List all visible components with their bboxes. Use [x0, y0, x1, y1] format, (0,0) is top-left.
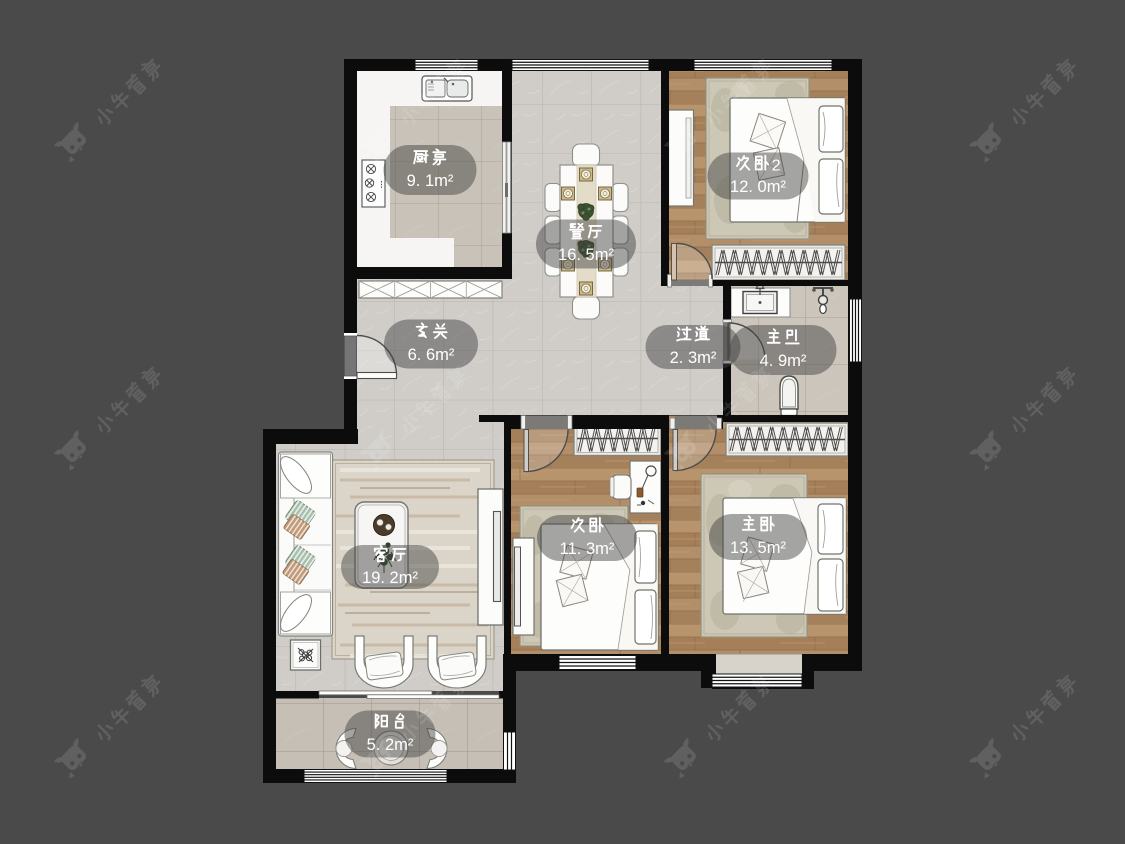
svg-text:4. 9m²: 4. 9m²: [760, 352, 807, 370]
svg-text:19. 2m²: 19. 2m²: [362, 569, 418, 587]
svg-text:6. 6m²: 6. 6m²: [408, 346, 455, 364]
svg-text:11. 3m²: 11. 3m²: [560, 540, 615, 558]
svg-text:12. 0m²: 12. 0m²: [730, 178, 786, 196]
svg-text:2. 3m²: 2. 3m²: [670, 349, 717, 367]
svg-text:9. 1m²: 9. 1m²: [407, 172, 454, 190]
svg-text:2: 2: [772, 158, 781, 175]
svg-text:16. 5m²: 16. 5m²: [558, 246, 614, 264]
svg-text:13. 5m²: 13. 5m²: [730, 539, 786, 557]
